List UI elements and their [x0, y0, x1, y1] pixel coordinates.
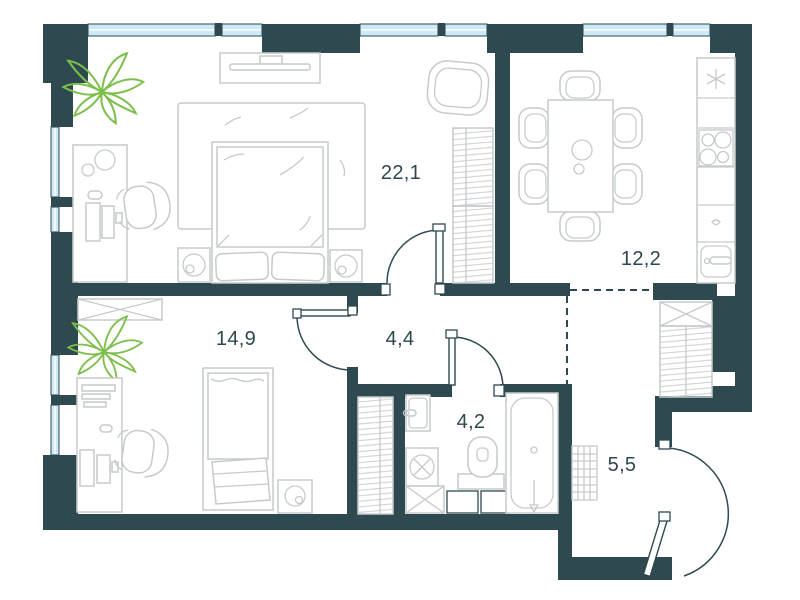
desk-main-icon — [73, 145, 127, 282]
hall-closet-icon — [660, 302, 712, 397]
bathroom-sink-icon — [404, 395, 431, 431]
door-bedroom-second — [293, 306, 357, 370]
toilet-icon — [458, 437, 504, 489]
room-label-hallway: 4,4 — [386, 328, 415, 350]
door-bathroom — [446, 330, 504, 396]
zone-boundary-dashed — [567, 290, 653, 384]
room-label-kitchen-dining: 12,2 — [621, 248, 661, 270]
bath-cabinet-icon — [406, 486, 444, 513]
room-label-entrance-hall: 5,5 — [608, 454, 637, 476]
wall-box-icons — [447, 491, 509, 513]
floor-plan-svg: 22,1 12,2 14,9 4,4 4,2 5,5 — [0, 0, 800, 600]
corridor-closet-icon — [358, 397, 393, 514]
dining-table-icon — [548, 100, 613, 212]
wardrobe-main-icon — [453, 128, 493, 283]
nightstand-right-icon — [330, 250, 362, 282]
armchair-icon — [426, 59, 490, 116]
room-label-bedroom: 14,9 — [216, 328, 256, 350]
door-bedroom-main — [381, 224, 445, 295]
double-bed-icon — [212, 142, 328, 283]
room-label-living-bedroom: 22,1 — [381, 162, 421, 184]
single-bed-icon — [203, 368, 273, 510]
washing-machine-icon — [406, 448, 438, 486]
pouf-icon — [278, 480, 312, 513]
plant-icon — [63, 53, 143, 123]
plant-icon-2 — [68, 316, 142, 380]
nightstand-left-icon — [178, 248, 210, 282]
tv-console-icon — [220, 53, 320, 83]
shoe-grid-icon — [572, 446, 597, 500]
door-entrance — [643, 440, 728, 576]
bathtub-icon — [506, 393, 558, 513]
window-band-top — [88, 24, 710, 36]
room-label-bathroom: 4,2 — [457, 411, 486, 433]
desk-second-icon — [77, 378, 122, 512]
wardrobe-crossed-icon — [78, 299, 162, 320]
